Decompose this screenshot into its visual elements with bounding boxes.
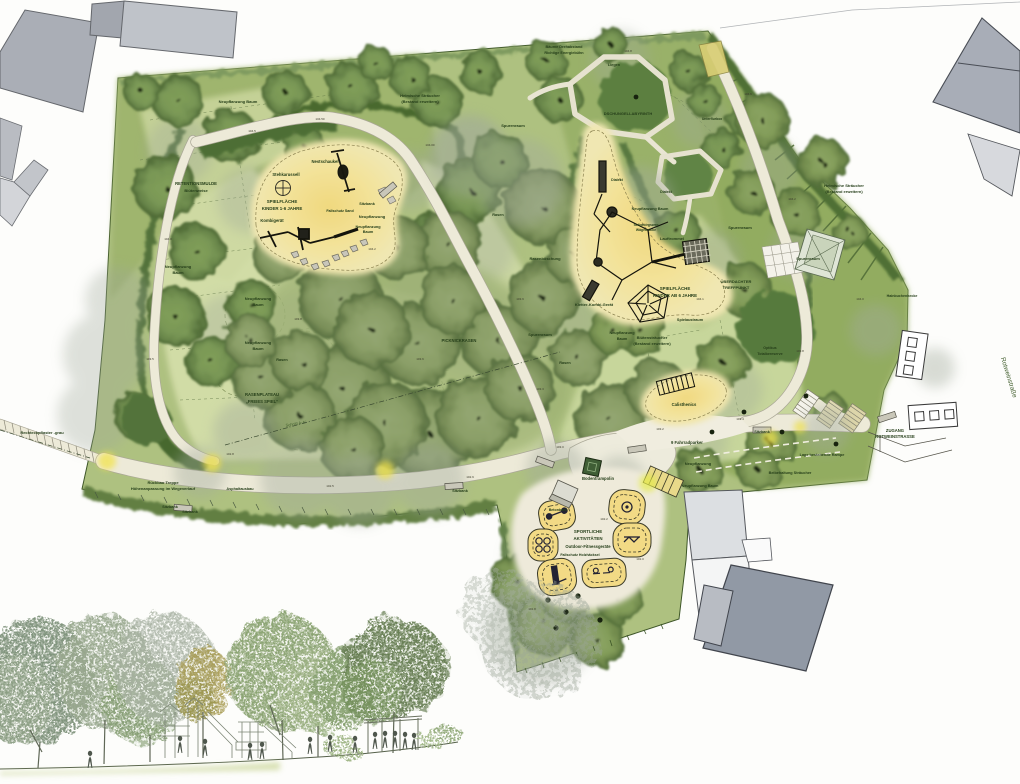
svg-text:Rückbau Treppe: Rückbau Treppe [147,480,179,485]
svg-text:Neupflanzung: Neupflanzung [245,340,272,345]
svg-text:103.5: 103.5 [146,357,154,361]
svg-text:Rasen: Rasen [559,361,571,365]
svg-text:Nestschaukel: Nestschaukel [312,159,339,164]
svg-text:SPIELFLÄCHE: SPIELFLÄCHE [267,199,298,204]
svg-text:104.50: 104.50 [315,117,325,121]
svg-text:Neupflanzung: Neupflanzung [685,461,712,466]
svg-text:104.0: 104.0 [856,297,864,301]
svg-text:„FREIES SPIEL“: „FREIES SPIEL“ [246,399,279,404]
svg-text:PICKNICKRASEN: PICKNICKRASEN [442,338,477,343]
svg-text:103.8: 103.8 [796,349,804,353]
svg-text:Optikus: Optikus [763,346,776,350]
svg-text:Neupflanzung Baum: Neupflanzung Baum [682,484,719,488]
svg-text:Sitzbank: Sitzbank [452,489,469,493]
svg-text:Baum: Baum [617,337,628,341]
svg-text:103.4: 103.4 [736,417,744,421]
svg-text:Bäume Drehabstand: Bäume Drehabstand [546,45,584,49]
svg-text:Dialekt: Dialekt [660,190,673,194]
svg-text:Dialekt: Dialekt [611,178,624,182]
svg-text:Neupflanzung: Neupflanzung [359,214,386,219]
svg-text:RASENPLATEAU: RASENPLATEAU [245,392,279,397]
svg-text:Unterflurbox: Unterflurbox [702,117,722,121]
svg-text:AKTIVITÄTEN: AKTIVITÄTEN [573,536,602,541]
svg-text:9 Fahrradparker: 9 Fahrradparker [671,440,703,445]
svg-text:Höhenanpassung im Wegeverlauf: Höhenanpassung im Wegeverlauf [131,486,196,491]
svg-text:102.5: 102.5 [326,484,334,488]
svg-text:Neupflanzung Baum: Neupflanzung Baum [219,99,258,104]
svg-text:Lage bestehende Rampe: Lage bestehende Rampe [800,453,845,457]
svg-text:Sitzbank: Sitzbank [359,202,376,206]
svg-text:KINDER AB 6 JAHRE: KINDER AB 6 JAHRE [653,293,697,298]
svg-text:104.5: 104.5 [248,129,256,133]
svg-text:Spurenraum: Spurenraum [796,256,820,261]
svg-text:Rasen: Rasen [492,213,504,217]
svg-text:103.2: 103.2 [656,427,664,431]
svg-text:Rasenböschung: Rasenböschung [529,256,561,261]
svg-text:Blütenweise: Blütenweise [184,188,208,193]
svg-text:Baum: Baum [252,346,264,351]
svg-text:Asphaltausbau: Asphaltausbau [226,487,254,491]
svg-text:Wägebrücke: Wägebrücke [636,228,656,232]
svg-text:Beibehaltung Sträucher: Beibehaltung Sträucher [769,471,812,475]
svg-text:Fallschutz Holzhäcksel: Fallschutz Holzhäcksel [560,553,599,557]
svg-text:Neupflanzung: Neupflanzung [609,331,635,335]
svg-text:KINDER 1-6 JAHRE: KINDER 1-6 JAHRE [262,206,303,211]
svg-text:Seilgebirgsweg: Seilgebirgsweg [634,223,659,227]
svg-text:Spurenraum: Spurenraum [528,332,552,337]
svg-text:Calisthenics: Calisthenics [672,402,697,407]
svg-text:DSCHUNGELLABYRINTH: DSCHUNGELLABYRINTH [604,111,653,116]
svg-text:Neupflanzung: Neupflanzung [245,296,272,301]
svg-text:Neupflanzung: Neupflanzung [165,264,192,269]
svg-text:101.8: 101.8 [528,607,536,611]
svg-text:103.0: 103.0 [556,445,564,449]
svg-text:Baum: Baum [363,230,374,234]
svg-text:Kletter-Kombi-Gerät: Kletter-Kombi-Gerät [575,302,614,307]
svg-text:Outdoor-Fitnessgeräte: Outdoor-Fitnessgeräte [565,544,611,549]
svg-text:103.3: 103.3 [536,387,544,391]
svg-text:Lauftrommel: Lauftrommel [660,236,684,241]
svg-text:104.0: 104.0 [164,237,172,241]
svg-text:ZUGANG: ZUGANG [886,428,904,433]
svg-text:104.2: 104.2 [788,197,796,201]
svg-text:102.9: 102.9 [466,475,474,479]
svg-text:Spurenraum: Spurenraum [728,225,752,230]
svg-text:Sitzbank: Sitzbank [182,510,199,514]
svg-text:ROTWEINSTRASSE: ROTWEINSTRASSE [875,434,915,439]
svg-text:Heimische Sträucher: Heimische Sträucher [400,93,440,98]
svg-text:103.8: 103.8 [294,317,302,321]
svg-text:Totalbereserve: Totalbereserve [757,352,782,356]
svg-text:102.8: 102.8 [226,452,234,456]
svg-text:102.0: 102.0 [636,557,644,561]
svg-text:102.2: 102.2 [600,517,608,521]
svg-text:TREFFPUNKT: TREFFPUNKT [723,285,750,290]
svg-text:104.1: 104.1 [696,297,704,301]
svg-text:SPIELFLÄCHE: SPIELFLÄCHE [660,286,691,291]
svg-text:Fallschutz Sand: Fallschutz Sand [326,209,353,213]
svg-text:Bodentrampolin: Bodentrampolin [582,476,615,481]
svg-text:ÜBERDACHTER: ÜBERDACHTER [721,279,752,284]
svg-text:104.2: 104.2 [368,247,376,251]
svg-text:Betonbank: Betonbank [549,508,568,512]
svg-text:Stehkarussell: Stehkarussell [272,172,299,177]
svg-text:(Bestand erweitern): (Bestand erweitern) [825,189,863,194]
svg-text:Liegen: Liegen [608,63,621,67]
svg-text:103.6: 103.6 [416,357,424,361]
svg-text:Kombigerät: Kombigerät [260,218,284,223]
svg-text:Neupflanzung: Neupflanzung [355,225,381,229]
svg-text:104.6: 104.6 [744,92,752,96]
svg-text:Richtige Energiebühn: Richtige Energiebühn [544,51,584,55]
svg-text:Spielaustraum: Spielaustraum [677,318,704,322]
svg-text:Baum: Baum [172,270,184,275]
svg-text:Baum: Baum [252,302,264,307]
svg-text:Sitzbank: Sitzbank [162,505,179,509]
svg-text:103.9: 103.9 [516,297,524,301]
svg-text:Neupflanzung Baum: Neupflanzung Baum [632,207,669,211]
svg-text:RETENTIONSMULDE: RETENTIONSMULDE [175,181,217,186]
svg-text:Hainbuchenhecke: Hainbuchenhecke [887,294,918,298]
svg-text:Blütensträucher: Blütensträucher [637,335,668,340]
svg-text:Rechteckpflaster -grau: Rechteckpflaster -grau [20,430,64,435]
svg-text:SPORTLICHE: SPORTLICHE [574,529,602,534]
svg-text:Spurenraum: Spurenraum [501,123,525,128]
svg-text:Rasen: Rasen [276,358,288,362]
svg-text:104.00: 104.00 [425,143,435,147]
svg-text:104.8: 104.8 [624,49,632,53]
svg-text:(Bestand erweitern): (Bestand erweitern) [401,99,439,104]
svg-text:Heimische Sträucher: Heimische Sträucher [824,183,864,188]
svg-text:(Bestand erweitern): (Bestand erweitern) [633,341,671,346]
svg-text:Sitzbank: Sitzbank [754,430,771,434]
